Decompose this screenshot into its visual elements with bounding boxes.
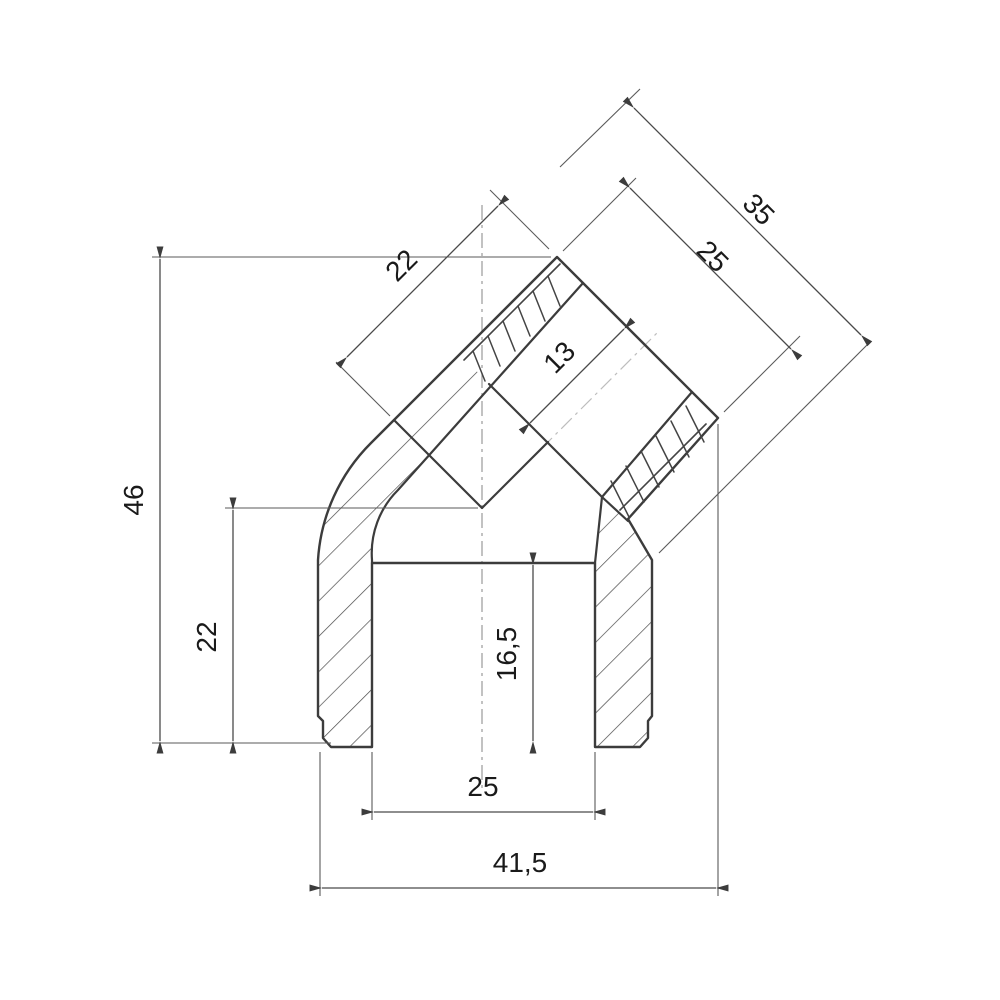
dim-13-label: 13 <box>537 335 581 379</box>
thread-rungs-lower-socket-wall <box>611 406 704 517</box>
hatch-right-wall <box>595 497 652 747</box>
elbow-fitting-technical-drawing: 46 22 16,5 25 41,5 35 25 22 13 <box>0 0 1000 1000</box>
thread-end-face <box>489 384 628 521</box>
thread-band-lower-edge <box>620 424 706 510</box>
hatch-left-wall-and-bend <box>318 354 489 747</box>
dim-35-line <box>634 108 861 335</box>
dim-22-vert-label: 22 <box>191 621 222 652</box>
dim-22-diag-line <box>347 206 498 357</box>
dim-16-5-label: 16,5 <box>491 627 522 682</box>
dim-25-diag-label: 25 <box>691 234 735 278</box>
bore-lower-wall <box>602 392 692 497</box>
thread-band-upper-edge <box>464 264 560 360</box>
dim-46-label: 46 <box>118 484 149 515</box>
dim-25-bot-label: 25 <box>467 771 498 802</box>
shoulder-right <box>482 442 548 508</box>
dim-22-diag-label: 22 <box>379 243 423 287</box>
dim-41-5-label: 41,5 <box>493 847 548 878</box>
ext-line-35-left <box>560 89 640 167</box>
dim-13-line <box>530 329 624 423</box>
ext-line-shoulder-plane <box>336 362 390 416</box>
dim-35-label: 35 <box>737 187 781 231</box>
ext-line-mouth-plane <box>490 190 549 249</box>
drawing-sheet: 46 22 16,5 25 41,5 35 25 22 13 <box>0 0 1000 1000</box>
ext-line-25-diag-left <box>563 178 636 251</box>
